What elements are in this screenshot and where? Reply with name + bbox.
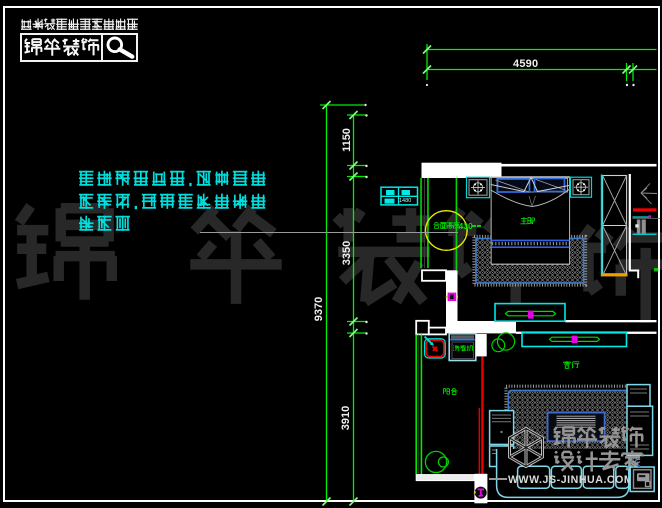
svg-text:WWW.JS-JINHUA.COM: WWW.JS-JINHUA.COM — [508, 474, 633, 486]
